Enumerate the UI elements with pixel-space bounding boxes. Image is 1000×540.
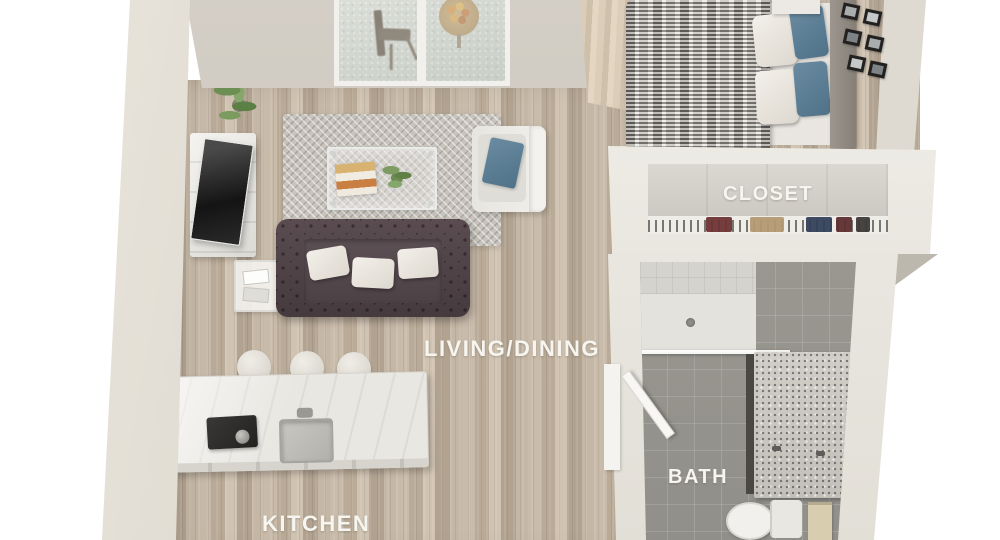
shower-drain (686, 318, 695, 327)
window-mullion (417, 0, 426, 86)
closet-label: CLOSET (648, 183, 888, 206)
shower-tiles (640, 262, 756, 294)
kettle (235, 429, 250, 444)
picture-frames (842, 0, 890, 96)
toilet-bowl (726, 502, 774, 540)
hanging-clothes (750, 217, 784, 232)
toilet (726, 500, 806, 540)
picture-frame (843, 28, 863, 46)
picture-frame (868, 60, 888, 78)
clothes-rail (648, 216, 888, 234)
hanging-clothes (706, 217, 732, 232)
sofa (276, 219, 470, 317)
hanging-clothes (836, 217, 852, 232)
table-leg (331, 201, 336, 206)
book-stack (242, 269, 269, 286)
nightstand (772, 0, 820, 14)
picture-frame (841, 2, 861, 20)
picture-frame (847, 54, 867, 72)
hanging-clothes (856, 217, 870, 232)
vanity-faucet (816, 451, 825, 456)
bed (630, 0, 858, 152)
table-leg (428, 151, 433, 156)
floorplan-canvas: CLOSET BATH LIVING/DINING KITCHEN (0, 0, 1000, 540)
balcony-window (334, 0, 510, 86)
vanity-faucet (772, 446, 781, 451)
bed-pillow-white (755, 69, 800, 125)
shower (640, 262, 756, 352)
sink-faucet (297, 408, 313, 418)
hanging-clothes (806, 217, 832, 232)
bed-pillow-blue (793, 61, 832, 118)
table-leg (331, 151, 336, 156)
vanity-countertop (754, 352, 856, 498)
towel-rack (808, 502, 832, 540)
armchair-back (529, 126, 546, 212)
living-dining-label: LIVING/DINING (424, 336, 600, 362)
table-leg (428, 201, 433, 206)
picture-frame (863, 8, 883, 26)
bath-door-frame (604, 364, 620, 470)
kitchen-label: KITCHEN (262, 511, 370, 537)
picture-frame (865, 34, 885, 52)
side-table (234, 260, 278, 312)
knit-blanket (626, 0, 770, 152)
bath-label: BATH (668, 466, 728, 489)
armchair (472, 126, 546, 212)
coffee-table-books (335, 161, 378, 196)
sofa-pillow (397, 247, 439, 280)
bath-interior: BATH (640, 262, 856, 540)
cooktop (206, 415, 258, 450)
coffee-table-plant (377, 152, 417, 204)
sofa-pillow (351, 257, 395, 289)
bathroom-vanity (746, 352, 856, 498)
kitchen-sink (279, 418, 334, 463)
kitchen-island (161, 371, 429, 473)
book-stack (242, 287, 269, 303)
toilet-tank (770, 500, 802, 538)
